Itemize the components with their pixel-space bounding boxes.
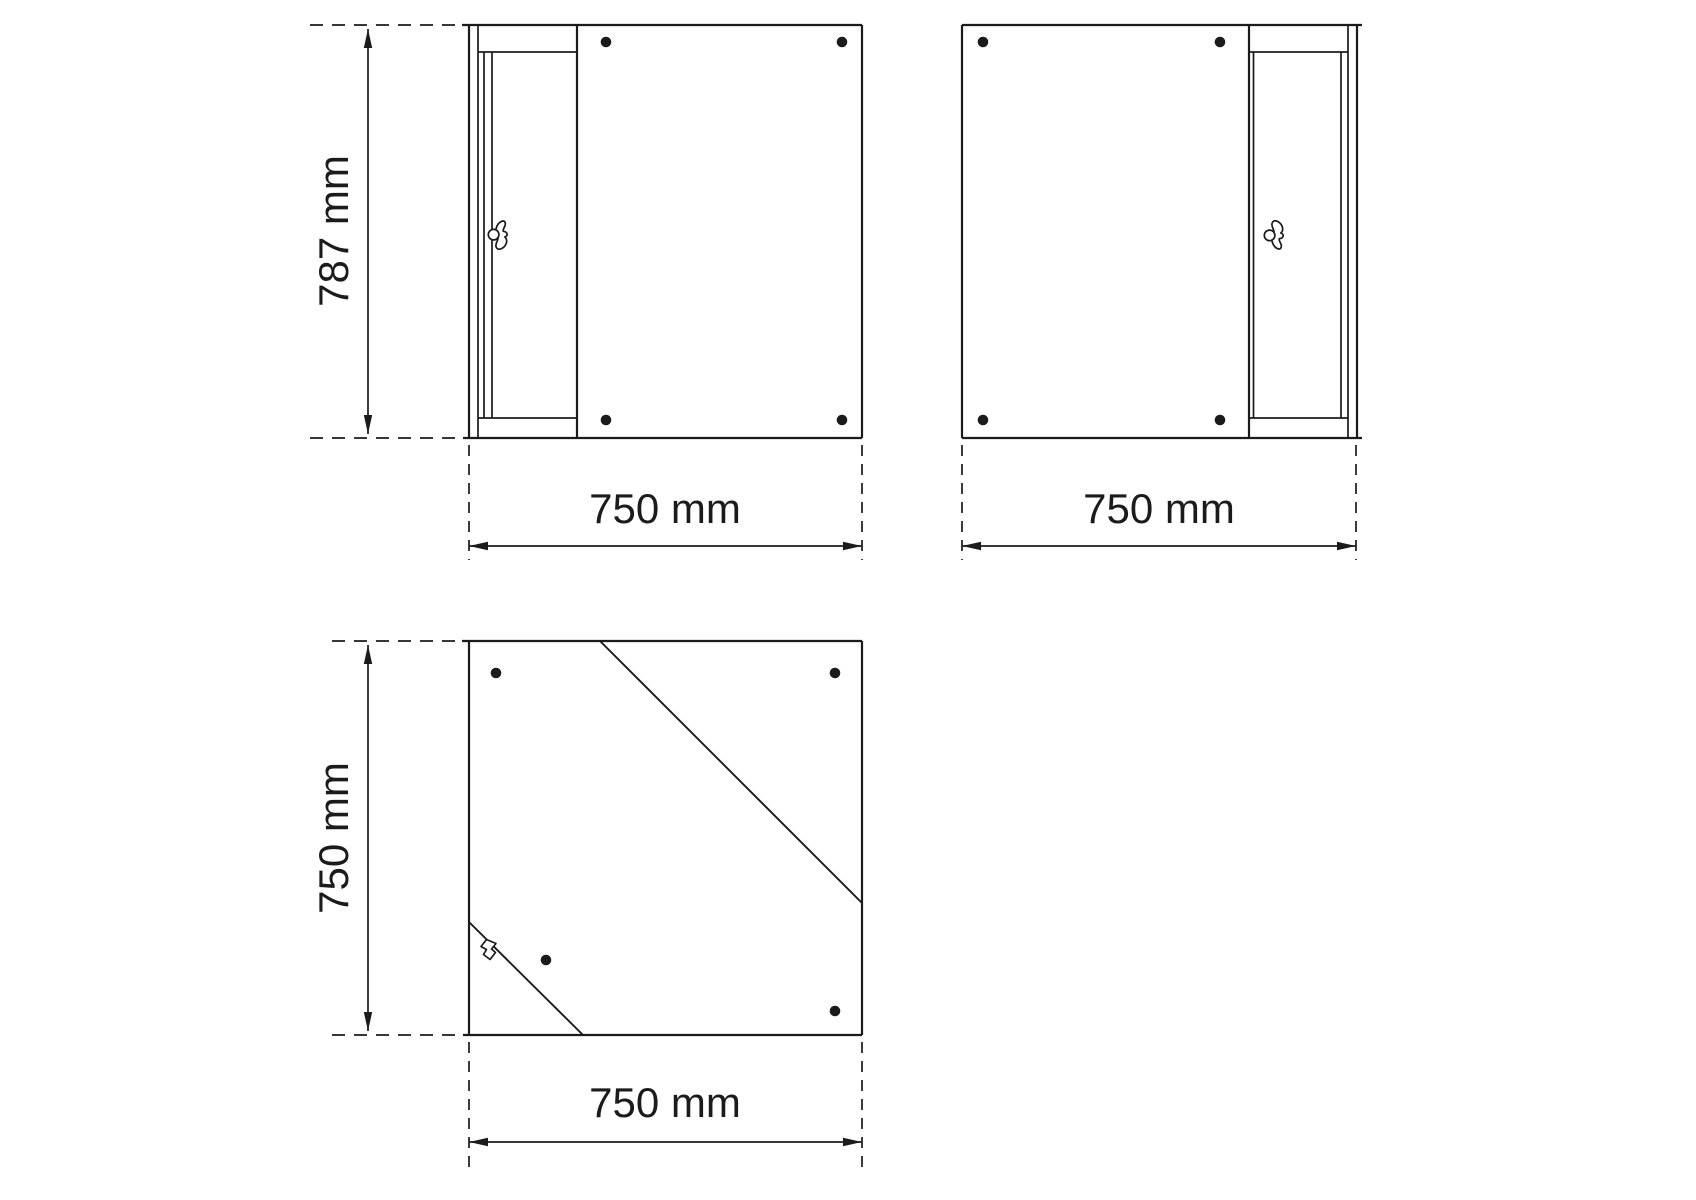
view-top bbox=[462, 641, 862, 1035]
v2-screw-hole-bottom-left bbox=[978, 415, 989, 426]
dim-label-width-750: 750 mm bbox=[589, 1079, 741, 1126]
v2-screw-hole-bottom-right bbox=[1215, 415, 1226, 426]
key-handle-icon bbox=[1264, 221, 1283, 249]
dim-label-width-750: 750 mm bbox=[1083, 485, 1235, 532]
v1-screw-hole-bottom-right bbox=[837, 415, 848, 426]
v3-diagonal-upper bbox=[600, 641, 862, 903]
v1-screw-hole-bottom-left bbox=[601, 415, 612, 426]
dimension-depth-view3: 750 mm bbox=[310, 641, 456, 1035]
view-side-left bbox=[462, 25, 862, 438]
v1-screw-hole-top-left bbox=[601, 37, 612, 48]
view-side-right bbox=[962, 25, 1362, 438]
dimension-width-view1: 750 mm bbox=[469, 445, 862, 560]
key-handle-top-icon bbox=[481, 940, 496, 960]
dimension-width-view2: 750 mm bbox=[962, 445, 1356, 560]
v3-screw-hole-inner bbox=[541, 955, 552, 966]
v3-screw-hole-top-left bbox=[491, 668, 502, 679]
v1-screw-hole-top-right bbox=[837, 37, 848, 48]
key-handle-icon bbox=[488, 221, 507, 249]
v2-screw-hole-top-left bbox=[978, 37, 989, 48]
dim-label-height-787: 787 mm bbox=[310, 155, 357, 307]
v3-screw-hole-top-right bbox=[830, 668, 841, 679]
dim-label-depth-750: 750 mm bbox=[310, 762, 357, 914]
dimension-width-view3: 750 mm bbox=[469, 1042, 862, 1168]
dimension-height-view1: 787 mm bbox=[310, 25, 456, 438]
v2-screw-hole-top-right bbox=[1215, 37, 1226, 48]
v3-screw-hole-bottom-right bbox=[830, 1006, 841, 1017]
dim-label-width-750: 750 mm bbox=[589, 485, 741, 532]
three-view-cabinet-drawing: 787 mm 750 mm 750 mm 750 mm 750 mm bbox=[0, 0, 1696, 1200]
technical-drawing-page: 787 mm 750 mm 750 mm 750 mm 750 mm bbox=[0, 0, 1696, 1200]
